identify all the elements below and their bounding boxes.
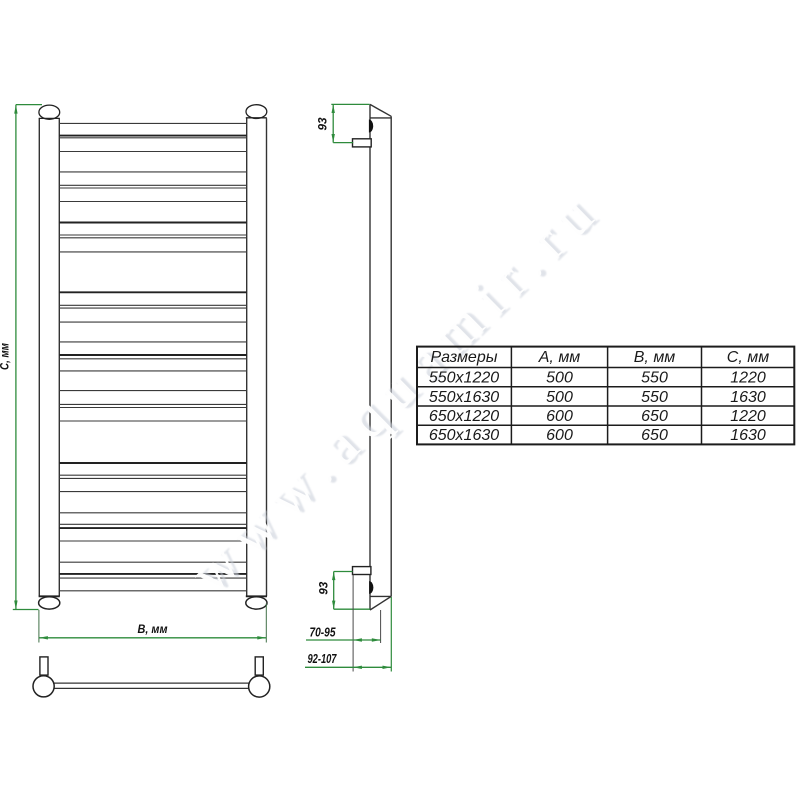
svg-text:Размеры: Размеры (430, 349, 497, 366)
svg-text:650: 650 (641, 427, 668, 444)
svg-text:550: 550 (641, 389, 668, 406)
svg-text:650: 650 (641, 408, 668, 425)
svg-text:1630: 1630 (730, 389, 766, 406)
svg-text:600: 600 (546, 408, 573, 425)
svg-text:С, мм: С, мм (0, 343, 12, 370)
svg-text:1220: 1220 (730, 408, 766, 425)
svg-text:В, мм: В, мм (138, 622, 168, 636)
svg-text:650х1220: 650х1220 (429, 408, 499, 425)
svg-text:93: 93 (316, 117, 330, 130)
svg-text:92-107: 92-107 (308, 652, 338, 666)
svg-text:600: 600 (546, 427, 573, 444)
svg-text:С, мм: С, мм (727, 349, 769, 366)
svg-text:70-95: 70-95 (310, 626, 337, 640)
svg-text:93: 93 (317, 581, 331, 594)
svg-text:500: 500 (546, 389, 573, 406)
svg-text:1630: 1630 (730, 427, 766, 444)
svg-text:550: 550 (641, 370, 668, 387)
svg-text:А, мм: А, мм (538, 349, 581, 366)
svg-text:500: 500 (546, 370, 573, 387)
svg-text:650х1630: 650х1630 (429, 427, 499, 444)
svg-text:1220: 1220 (730, 370, 766, 387)
svg-text:550х1630: 550х1630 (429, 389, 499, 406)
svg-text:550х1220: 550х1220 (429, 370, 499, 387)
svg-text:В, мм: В, мм (634, 349, 676, 366)
